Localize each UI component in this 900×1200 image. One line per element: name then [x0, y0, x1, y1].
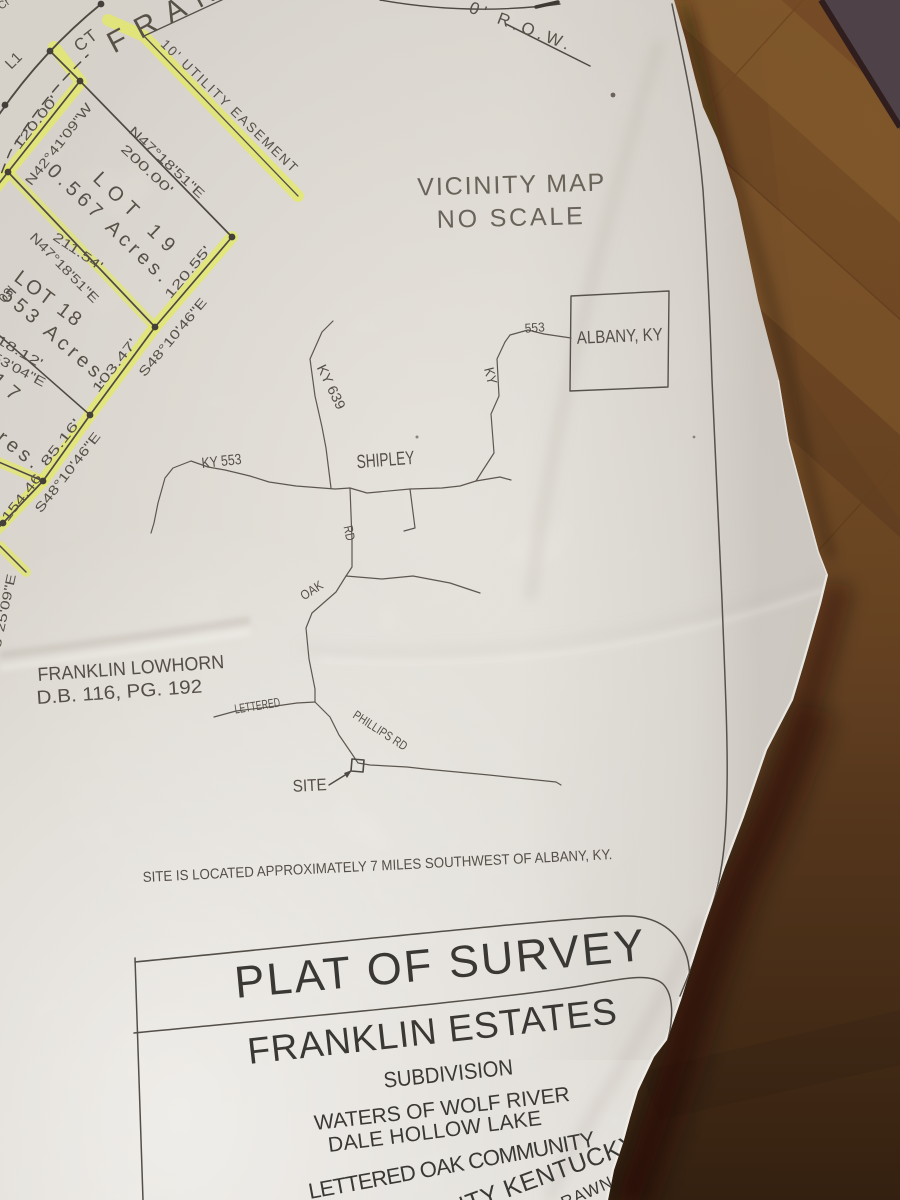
svg-text:VICINITY MAP: VICINITY MAP — [417, 169, 605, 202]
svg-text:ALBANY, KY: ALBANY, KY — [576, 324, 663, 348]
svg-text:NO SCALE: NO SCALE — [436, 202, 583, 234]
svg-text:553: 553 — [524, 319, 545, 335]
svg-text:SITE: SITE — [292, 775, 327, 796]
svg-text:RD: RD — [341, 524, 359, 542]
